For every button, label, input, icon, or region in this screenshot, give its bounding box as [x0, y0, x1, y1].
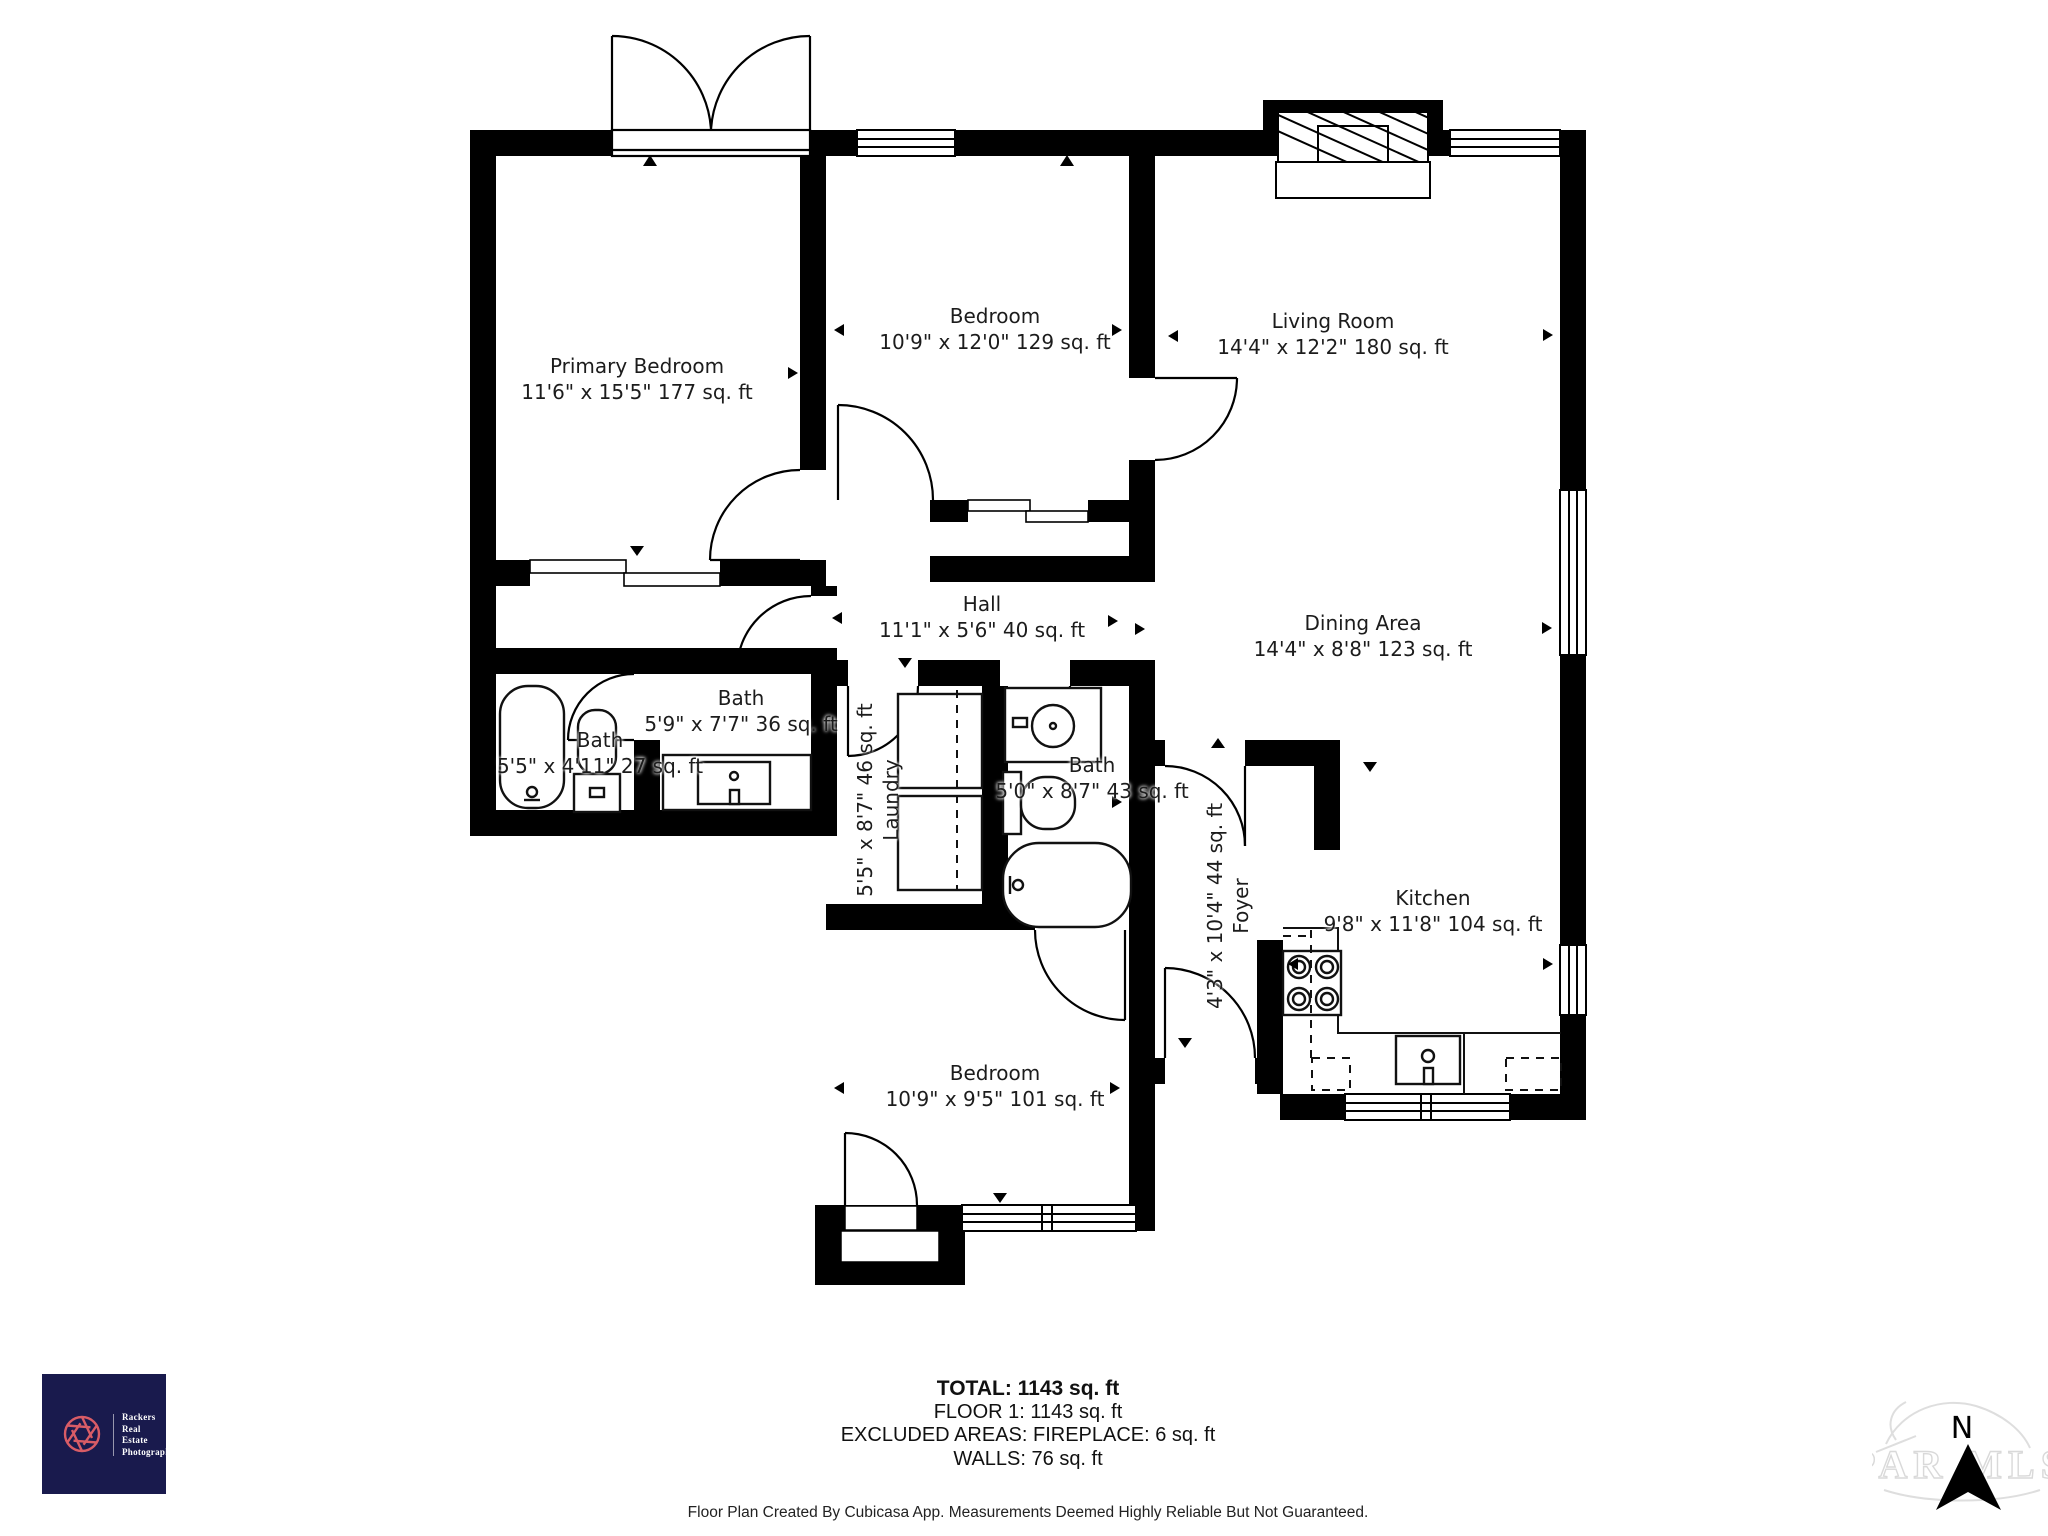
room-dims: 5'0" x 8'7" 43 sq. ft [995, 778, 1188, 804]
north-label: N [1951, 1411, 1973, 1446]
room-name: Kitchen [1324, 885, 1543, 911]
excluded-area: EXCLUDED AREAS: FIREPLACE: 6 sq. ft [841, 1424, 1216, 1448]
room-label-dining-area: Dining Area 14'4" x 8'8" 123 sq. ft [1254, 610, 1473, 662]
logo-text: Rackers Real Estate Photography [122, 1412, 175, 1458]
room-label-laundry: Laundry 5'5" x 8'7" 46 sq. ft [852, 703, 904, 896]
window-icon [1560, 490, 1586, 655]
door-swing-icon [1155, 378, 1237, 460]
logo-divider [113, 1414, 114, 1456]
area-summary: TOTAL: 1143 sq. ft FLOOR 1: 1143 sq. ft … [841, 1377, 1216, 1471]
door-swing-icon [845, 1133, 917, 1205]
room-dims: 10'9" x 9'5" 101 sq. ft [886, 1086, 1105, 1112]
window-icon [1560, 945, 1586, 1015]
door-swing-icon [710, 470, 800, 560]
room-label-bedroom-top: Bedroom 10'9" x 12'0" 129 sq. ft [879, 303, 1111, 355]
door-swing-icon [838, 405, 933, 500]
disclaimer-text: Floor Plan Created By Cubicasa App. Meas… [688, 1504, 1369, 1522]
logo-line: Rackers [122, 1412, 175, 1424]
room-dims: 9'8" x 11'8" 104 sq. ft [1324, 911, 1543, 937]
room-label-bath-hall: Bath 5'9" x 7'7" 36 sq. ft [644, 685, 837, 737]
window-icon [1450, 130, 1560, 156]
room-dims: 5'5" x 4'11" 27 sq. ft [497, 753, 703, 779]
floor-plan-page: Primary Bedroom 11'6" x 15'5" 177 sq. ft… [0, 0, 2048, 1536]
room-dims: 11'1" x 5'6" 40 sq. ft [879, 617, 1085, 643]
room-label-kitchen: Kitchen 9'8" x 11'8" 104 sq. ft [1324, 885, 1543, 937]
room-name: Dining Area [1254, 610, 1473, 636]
room-label-primary-bedroom: Primary Bedroom 11'6" x 15'5" 177 sq. ft [521, 353, 753, 405]
window-icon [1345, 1094, 1510, 1120]
window-icon [962, 1205, 1136, 1231]
window-icon [857, 130, 955, 156]
room-dims: 14'4" x 12'2" 180 sq. ft [1217, 334, 1449, 360]
room-name: Bath [995, 752, 1188, 778]
washer-icon [898, 694, 982, 788]
total-area: TOTAL: 1143 sq. ft [841, 1377, 1216, 1401]
sliding-door-icon [530, 560, 720, 586]
door-swing-icon [1035, 930, 1125, 1020]
room-dims: 5'5" x 8'7" 46 sq. ft [852, 703, 878, 896]
walls-area: WALLS: 76 sq. ft [841, 1448, 1216, 1472]
room-dims: 14'4" x 8'8" 123 sq. ft [1254, 636, 1473, 662]
room-name: Bedroom [886, 1060, 1105, 1086]
sink-icon [1396, 1036, 1460, 1084]
room-dims: 10'9" x 12'0" 129 sq. ft [879, 329, 1111, 355]
room-label-bath-middle: Bath 5'0" x 8'7" 43 sq. ft [995, 752, 1188, 804]
dryer-icon [898, 796, 982, 890]
room-name: Bedroom [879, 303, 1111, 329]
sink-icon [1005, 688, 1101, 762]
room-name: Bath [644, 685, 837, 711]
logo-line: Real [122, 1424, 175, 1436]
room-dims: 4'3" x 10'4" 44 sq. ft [1202, 803, 1228, 1009]
bathtub-icon [1003, 843, 1131, 927]
room-dims: 11'6" x 15'5" 177 sq. ft [521, 379, 753, 405]
room-label-living-room: Living Room 14'4" x 12'2" 180 sq. ft [1217, 308, 1449, 360]
room-name: Living Room [1217, 308, 1449, 334]
room-dims: 5'9" x 7'7" 36 sq. ft [644, 711, 837, 737]
room-label-bedroom-bottom: Bedroom 10'9" x 9'5" 101 sq. ft [886, 1060, 1105, 1112]
room-label-foyer: Foyer 4'3" x 10'4" 44 sq. ft [1202, 803, 1254, 1009]
double-door-icon [612, 36, 810, 156]
room-label-hall: Hall 11'1" x 5'6" 40 sq. ft [879, 591, 1085, 643]
room-name: Primary Bedroom [521, 353, 753, 379]
room-name: Laundry [878, 703, 904, 896]
room-name: Foyer [1228, 803, 1254, 1009]
logo-line: Estate [122, 1435, 175, 1447]
room-name: Hall [879, 591, 1085, 617]
floor1-area: FLOOR 1: 1143 sq. ft [841, 1401, 1216, 1425]
logo-line: Photography [122, 1447, 175, 1459]
compass: PAR MLS N [1872, 1382, 2048, 1532]
photographer-logo: Rackers Real Estate Photography [42, 1374, 166, 1494]
sliding-door-icon [968, 500, 1088, 522]
